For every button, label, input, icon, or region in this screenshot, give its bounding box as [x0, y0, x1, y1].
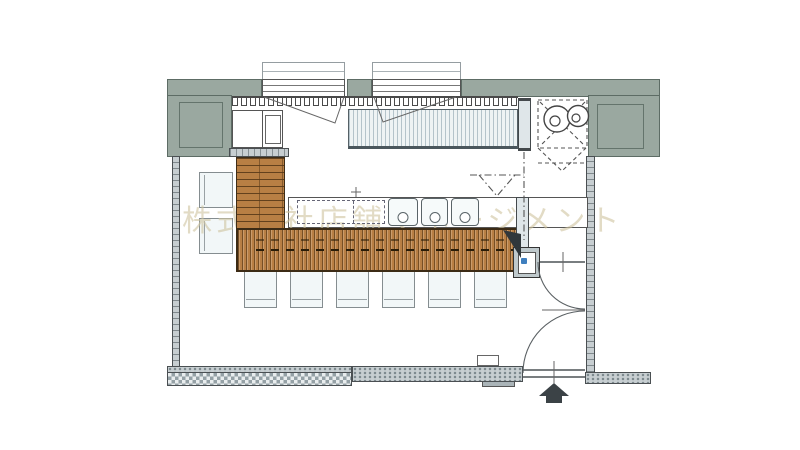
stool-line [476, 299, 505, 300]
sink-2 [421, 198, 448, 226]
entrance-arrow-icon [539, 383, 569, 403]
wall-left [172, 156, 180, 368]
stool-line [384, 299, 413, 300]
facade-deck-band [167, 372, 352, 386]
chair-back [204, 221, 205, 251]
bar-counter [236, 228, 517, 272]
counter-stool [428, 271, 461, 308]
counter-joint-line [256, 249, 513, 251]
wall-bottom-stub [585, 372, 651, 384]
counter-stool [244, 271, 277, 308]
range-hood-louver [348, 109, 518, 149]
drain-icon [429, 212, 440, 223]
stool-line [338, 299, 367, 300]
counter-stool [382, 271, 415, 308]
counter-stool [290, 271, 323, 308]
counter-cap [229, 148, 289, 157]
window-2 [372, 79, 461, 97]
entrance-door-swing [523, 311, 585, 383]
window-1 [262, 79, 345, 97]
window-frame-1 [262, 62, 345, 80]
sink-3 [451, 198, 479, 226]
partition-segment [518, 98, 531, 151]
wall-mounted-unit [477, 355, 499, 366]
gas-burner-unit [538, 100, 589, 171]
drain-icon [460, 212, 471, 223]
interior-door-swing [538, 252, 585, 310]
tile-edge-hatch [232, 96, 518, 110]
counter-stool [474, 271, 507, 308]
side-chair [199, 218, 233, 254]
faucet-icon [521, 258, 527, 264]
counter-end-panel [516, 197, 529, 250]
counter-stool [336, 271, 369, 308]
sink-1 [388, 198, 418, 226]
hand-wash-station [513, 247, 540, 278]
stool-line [246, 299, 275, 300]
column-outline-right [597, 104, 644, 149]
counter-center-tick [351, 187, 361, 197]
equipment-divider [262, 111, 263, 147]
window-frame-2 [372, 62, 461, 80]
wall-bottom-mid [352, 366, 523, 382]
counter-joint-line [256, 239, 513, 241]
wall-right [586, 156, 595, 373]
undercounter-divider [353, 201, 354, 223]
floor-plan-canvas: 株式会社店舗マネージメント [0, 0, 800, 450]
column-outline-left [179, 102, 223, 148]
side-chair [199, 172, 233, 208]
equipment-inner [265, 115, 281, 144]
back-equipment-box [232, 110, 283, 148]
drain-icon [398, 212, 409, 223]
stool-line [430, 299, 459, 300]
undercounter-equipment [297, 200, 385, 224]
bar-counter-vertical [236, 157, 285, 229]
stool-line [292, 299, 321, 300]
chair-back [204, 175, 205, 205]
wall-top-pillar [347, 79, 372, 97]
